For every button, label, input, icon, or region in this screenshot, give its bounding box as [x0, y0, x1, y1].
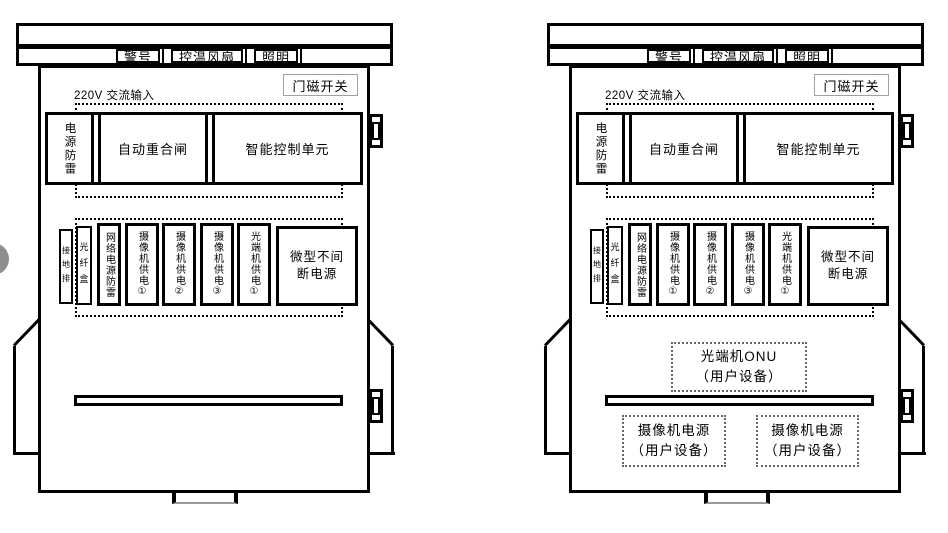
device-power-surge-protector: 电源防雷 [48, 115, 94, 182]
user-camera-power-left: 摄像机电源 （用户设备） [622, 415, 726, 467]
user-camera-subtitle: （用户设备） [764, 441, 851, 461]
cabinet-left: 警号 控温风扇 照明 门磁开关 220V 交流输入 电源防雷 自动重合闸 智能控… [2, 0, 414, 533]
roof-label-fan: 控温风扇 [702, 49, 774, 63]
right-wing-line [391, 346, 394, 454]
device-smart-control-unit: 智能控制单元 [212, 115, 360, 182]
device-mini-ups: 微型不间断电源 [807, 226, 889, 306]
device-network-surge-protector: 网络电源防雷 [97, 223, 121, 306]
device-label: 光端机供电① [247, 231, 262, 298]
device-camera-power-1: 摄像机供电① [125, 223, 159, 306]
left-wing-line [13, 346, 16, 454]
roof-label-fan: 控温风扇 [171, 49, 243, 63]
ac-input-label: 220V 交流输入 [74, 87, 155, 103]
user-camera-subtitle: （用户设备） [631, 441, 718, 461]
hinge-bottom [369, 389, 383, 423]
roof-label-lighting: 照明 [254, 49, 298, 63]
device-label: 摄像机供电① [135, 231, 150, 298]
user-camera-power-right: 摄像机电源 （用户设备） [756, 415, 859, 467]
cabinet-right: 警号 控温风扇 照明 门磁开关 220V 交流输入 电源防雷 自动重合闸 智能控… [533, 0, 945, 533]
device-label: 网络电源防雷 [102, 232, 117, 298]
device-smart-control-unit: 智能控制单元 [743, 115, 891, 182]
user-camera-title: 摄像机电源 [638, 421, 711, 441]
device-label: 光端机供电① [778, 231, 793, 298]
roof-top-panel [16, 23, 393, 47]
hinge-pin [903, 397, 911, 415]
device-label: 摄像机供电② [172, 231, 187, 298]
device-label: 网络电源防雷 [633, 232, 648, 298]
device-ground-busbar: 接地排 [590, 229, 604, 304]
roof-label-bar: 警号 控温风扇 照明 [16, 46, 393, 66]
roof-label-lighting: 照明 [785, 49, 829, 63]
hinge-pin [372, 122, 380, 140]
device-camera-power-1: 摄像机供电① [656, 223, 690, 306]
hinge-top [369, 114, 383, 148]
left-wing-bottom [13, 452, 40, 455]
label-separator-line [776, 49, 778, 63]
diagram-canvas: 警号 控温风扇 照明 门磁开关 220V 交流输入 电源防雷 自动重合闸 智能控… [0, 0, 948, 533]
right-wing-bottom [368, 452, 395, 455]
left-wing-diagonal [13, 319, 40, 347]
device-power-surge-protector: 电源防雷 [579, 115, 625, 182]
ac-input-label: 220V 交流输入 [605, 87, 686, 103]
label-separator-line [300, 49, 302, 63]
device-label: 摄像机供电② [703, 231, 718, 298]
device-fiber-box: 光纤盒 [76, 226, 92, 305]
device-camera-power-3: 摄像机供电③ [200, 223, 234, 306]
roof-label-alarm: 警号 [116, 49, 160, 63]
device-label: 光纤盒 [78, 242, 91, 290]
label-separator-line [162, 49, 164, 63]
device-mini-ups: 微型不间断电源 [276, 226, 358, 306]
user-onu-subtitle: （用户设备） [696, 367, 783, 387]
cable-slot [74, 395, 343, 406]
cabinet-foot [172, 493, 238, 504]
device-optical-terminal-power-1: 光端机供电① [237, 223, 271, 306]
label-separator-line [693, 49, 695, 63]
roof-top-panel [547, 23, 924, 47]
cable-slot [605, 395, 874, 406]
device-label: 摄像机供电① [666, 231, 681, 298]
roof-label-bar: 警号 控温风扇 照明 [547, 46, 924, 66]
device-network-surge-protector: 网络电源防雷 [628, 223, 652, 306]
right-wing-line [922, 346, 925, 454]
door-sensor-switch-label: 门磁开关 [283, 74, 358, 96]
device-optical-terminal-power-1: 光端机供电① [768, 223, 802, 306]
hinge-pin [372, 397, 380, 415]
device-auto-recloser: 自动重合闸 [98, 115, 208, 182]
hinge-pin [903, 122, 911, 140]
right-wing-diagonal [898, 318, 925, 346]
device-label: 摄像机供电③ [210, 231, 225, 298]
label-separator-line [245, 49, 247, 63]
device-camera-power-2: 摄像机供电② [162, 223, 196, 306]
device-camera-power-2: 摄像机供电② [693, 223, 727, 306]
door-sensor-switch-label: 门磁开关 [814, 74, 889, 96]
right-wing-bottom [899, 452, 926, 455]
left-wing-bottom [544, 452, 571, 455]
device-auto-recloser: 自动重合闸 [629, 115, 739, 182]
hinge-top [900, 114, 914, 148]
hinge-bottom [900, 389, 914, 423]
device-ground-busbar: 接地排 [59, 229, 73, 304]
cabinet-foot [704, 493, 770, 504]
device-label: 接地排 [592, 246, 603, 288]
device-row-1: 电源防雷 自动重合闸 智能控制单元 [45, 112, 363, 185]
user-onu-title: 光端机ONU [701, 347, 778, 367]
user-onu-box: 光端机ONU （用户设备） [671, 342, 807, 392]
device-fiber-box: 光纤盒 [607, 226, 623, 305]
device-camera-power-3: 摄像机供电③ [731, 223, 765, 306]
device-label: 光纤盒 [609, 242, 622, 290]
device-label: 电源防雷 [62, 122, 78, 176]
label-separator-line [831, 49, 833, 63]
roof-label-alarm: 警号 [647, 49, 691, 63]
device-label: 摄像机供电③ [741, 231, 756, 298]
left-wing-diagonal [544, 319, 571, 347]
device-label: 微型不间断电源 [290, 249, 344, 283]
device-label: 电源防雷 [593, 122, 609, 176]
device-row-1: 电源防雷 自动重合闸 智能控制单元 [576, 112, 894, 185]
device-label: 接地排 [61, 246, 72, 288]
user-camera-title: 摄像机电源 [771, 421, 844, 441]
right-wing-diagonal [367, 318, 394, 346]
device-label: 微型不间断电源 [821, 249, 875, 283]
left-wing-line [544, 346, 547, 454]
